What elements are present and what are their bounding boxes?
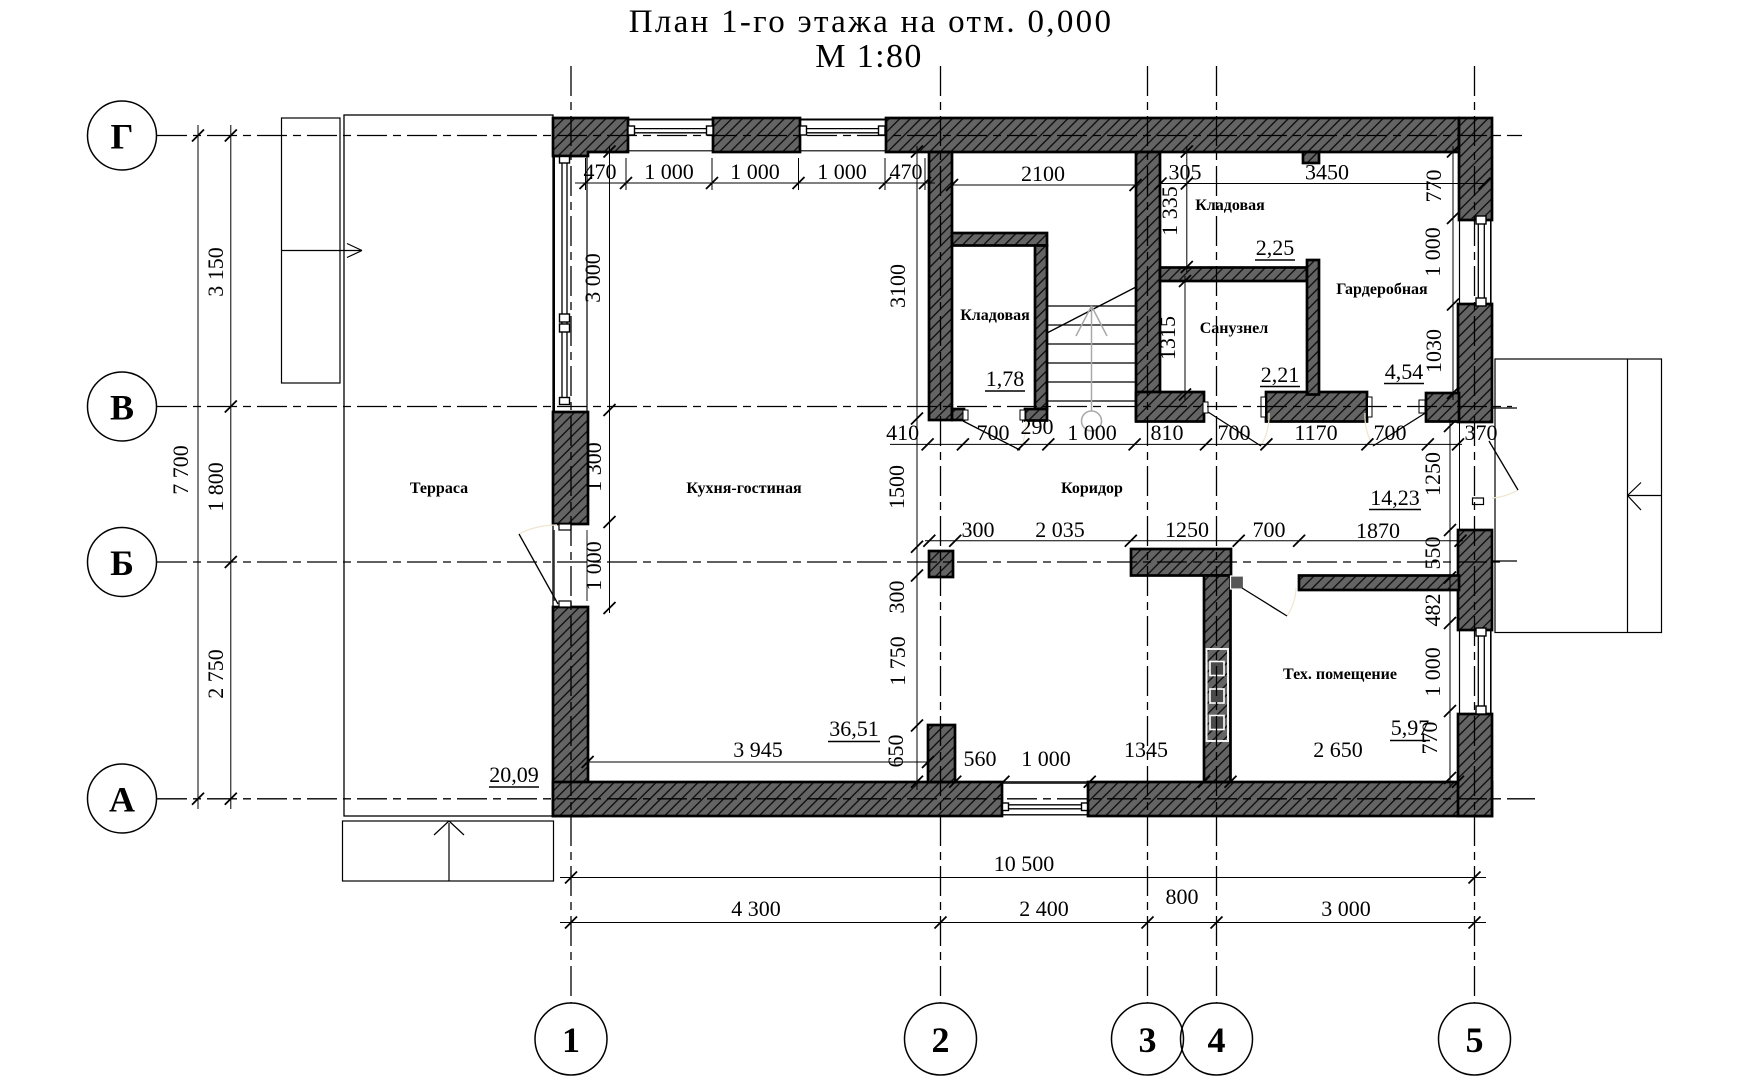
- svg-text:2,25: 2,25: [1256, 235, 1295, 260]
- svg-text:300: 300: [884, 581, 909, 614]
- svg-text:А: А: [109, 780, 135, 820]
- svg-text:650: 650: [883, 735, 908, 768]
- svg-text:700: 700: [977, 420, 1010, 445]
- svg-text:370: 370: [1465, 420, 1498, 445]
- svg-text:2 035: 2 035: [1035, 517, 1085, 542]
- svg-text:Кладовая: Кладовая: [1195, 197, 1265, 214]
- svg-text:482: 482: [1420, 594, 1445, 627]
- svg-text:700: 700: [1218, 420, 1251, 445]
- svg-text:Терраса: Терраса: [410, 480, 468, 497]
- svg-text:3100: 3100: [885, 264, 910, 308]
- svg-text:2100: 2100: [1021, 161, 1065, 186]
- svg-text:2 400: 2 400: [1019, 896, 1069, 921]
- svg-text:2 750: 2 750: [203, 649, 228, 699]
- svg-text:4,54: 4,54: [1385, 359, 1424, 384]
- svg-text:770: 770: [1417, 722, 1442, 755]
- svg-text:470: 470: [584, 159, 617, 184]
- svg-text:810: 810: [1151, 420, 1184, 445]
- svg-text:План 1-го этажа на отм. 0,000: План 1-го этажа на отм. 0,000: [629, 4, 1114, 40]
- svg-text:1870: 1870: [1356, 518, 1400, 543]
- svg-text:550: 550: [1420, 537, 1445, 570]
- svg-text:7 700: 7 700: [168, 445, 193, 495]
- svg-text:1250: 1250: [1420, 452, 1445, 496]
- svg-text:1 000: 1 000: [730, 159, 780, 184]
- svg-text:1 300: 1 300: [581, 442, 606, 492]
- svg-text:305: 305: [1169, 160, 1202, 185]
- svg-text:Гардеробная: Гардеробная: [1336, 281, 1428, 298]
- svg-text:1170: 1170: [1294, 420, 1337, 445]
- svg-text:Санузнел: Санузнел: [1200, 320, 1269, 337]
- svg-text:3 945: 3 945: [733, 737, 783, 762]
- svg-text:700: 700: [1253, 517, 1286, 542]
- svg-text:3 150: 3 150: [203, 247, 228, 297]
- svg-text:1315: 1315: [1155, 316, 1180, 360]
- svg-text:800: 800: [1166, 884, 1199, 909]
- svg-text:10 500: 10 500: [994, 851, 1055, 876]
- svg-text:290: 290: [1021, 414, 1054, 439]
- svg-text:1 750: 1 750: [885, 636, 910, 686]
- svg-text:Коридор: Коридор: [1061, 480, 1123, 497]
- svg-text:1 000: 1 000: [817, 159, 867, 184]
- svg-text:1,78: 1,78: [986, 366, 1025, 391]
- svg-text:4 300: 4 300: [731, 896, 781, 921]
- svg-text:1 800: 1 800: [203, 462, 228, 512]
- svg-text:300: 300: [962, 517, 995, 542]
- svg-text:3 000: 3 000: [580, 253, 605, 303]
- svg-text:1 000: 1 000: [1067, 420, 1117, 445]
- svg-text:М 1:80: М 1:80: [815, 38, 923, 75]
- svg-text:1250: 1250: [1165, 517, 1209, 542]
- svg-text:1 335: 1 335: [1157, 186, 1182, 236]
- svg-text:1345: 1345: [1124, 737, 1168, 762]
- svg-text:1500: 1500: [884, 465, 909, 509]
- svg-text:1 000: 1 000: [1420, 227, 1445, 277]
- svg-text:Кухня-гостиная: Кухня-гостиная: [686, 480, 802, 497]
- svg-text:2,21: 2,21: [1261, 362, 1300, 387]
- svg-text:Г: Г: [111, 117, 134, 157]
- svg-text:2 650: 2 650: [1313, 737, 1363, 762]
- svg-text:700: 700: [1374, 420, 1407, 445]
- svg-text:В: В: [110, 388, 134, 428]
- svg-text:1 000: 1 000: [581, 541, 606, 591]
- svg-text:1 000: 1 000: [644, 159, 694, 184]
- svg-text:3 000: 3 000: [1321, 896, 1371, 921]
- svg-text:Тех. помещение: Тех. помещение: [1283, 666, 1397, 683]
- svg-text:560: 560: [964, 746, 997, 771]
- svg-text:Кладовая: Кладовая: [960, 307, 1030, 324]
- svg-text:770: 770: [1421, 170, 1446, 203]
- svg-text:14,23: 14,23: [1370, 485, 1420, 510]
- svg-text:1 000: 1 000: [1021, 746, 1071, 771]
- svg-text:3450: 3450: [1305, 160, 1349, 185]
- svg-text:1030: 1030: [1421, 329, 1446, 373]
- svg-text:1: 1: [562, 1020, 580, 1060]
- svg-text:2: 2: [932, 1020, 950, 1060]
- svg-text:4: 4: [1208, 1020, 1226, 1060]
- svg-text:Б: Б: [110, 543, 134, 583]
- svg-text:3: 3: [1139, 1020, 1157, 1060]
- svg-text:410: 410: [886, 420, 919, 445]
- svg-text:20,09: 20,09: [489, 762, 539, 787]
- svg-text:1 000: 1 000: [1420, 647, 1445, 697]
- svg-text:470: 470: [890, 159, 923, 184]
- svg-text:36,51: 36,51: [829, 716, 879, 741]
- svg-text:5: 5: [1466, 1020, 1484, 1060]
